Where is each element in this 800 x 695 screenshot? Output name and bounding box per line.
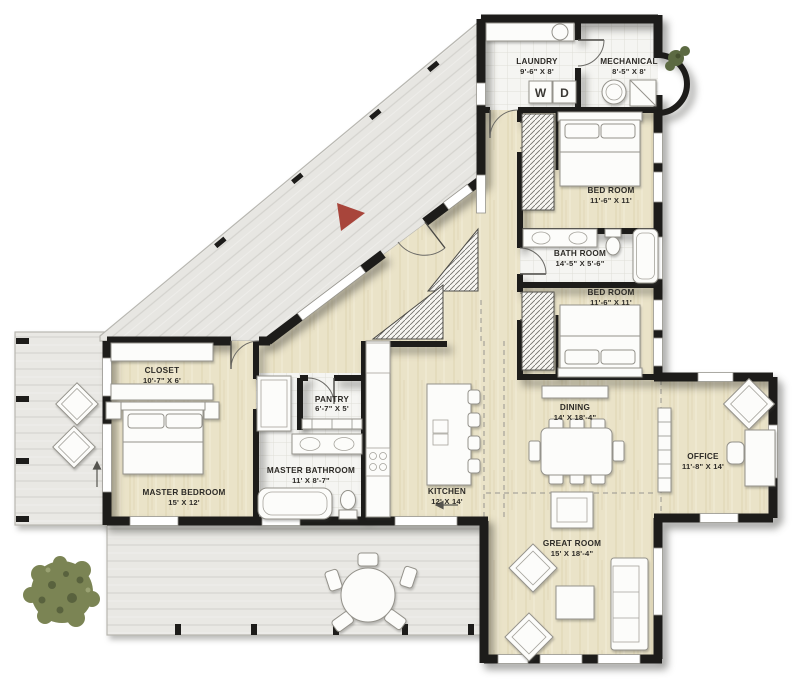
label-kitchen: KITCHEN	[428, 487, 466, 496]
label-master-bathroom: MASTER BATHROOM	[267, 466, 355, 475]
label-mechanical: MECHANICAL	[600, 57, 658, 66]
floor-plan: LAUNDRY 9'-6" X 8' MECHANICAL 8'-5" X 8'…	[0, 0, 800, 695]
master-bed	[106, 402, 219, 474]
bathroom-toilet	[605, 229, 621, 255]
kitchen-counter	[366, 341, 390, 517]
pantry-shelf	[302, 419, 362, 429]
label-office: OFFICE	[687, 452, 719, 461]
plant-top-right	[665, 46, 690, 71]
label-dryer: D	[560, 86, 569, 100]
bush-bottom-left	[23, 556, 100, 627]
master-toilet	[339, 491, 357, 520]
dims-bathroom: 14'-5" X 5'-6"	[555, 259, 604, 268]
laundry-counter	[486, 23, 574, 41]
dims-master-bathroom: 11' X 8'-7"	[292, 476, 330, 485]
left-deck	[15, 332, 107, 525]
label-closet: CLOSET	[145, 366, 180, 375]
office-chair	[727, 442, 744, 464]
label-pantry: PANTRY	[315, 395, 350, 404]
dims-dining: 14' X 18'-4"	[554, 413, 597, 422]
dims-closet: 10'-7" X 6'	[143, 376, 181, 385]
bedroom-bottom-bed	[558, 305, 642, 377]
greatroom-sofa	[611, 558, 648, 650]
master-shower	[257, 376, 291, 431]
label-bedroom-bottom: BED ROOM	[587, 288, 634, 297]
dims-master-bedroom: 15' X 12'	[168, 498, 200, 507]
bedroom-top-bed	[558, 112, 642, 186]
bedroom-bottom-closet	[522, 292, 554, 370]
dims-pantry: 6'-7" X 5'	[315, 404, 349, 413]
label-dining: DINING	[560, 403, 590, 412]
dining-table-set	[529, 419, 624, 484]
greatroom-console	[551, 492, 593, 528]
label-great-room: GREAT ROOM	[543, 539, 601, 548]
label-bedroom-top: BED ROOM	[587, 186, 634, 195]
bathroom-tub	[633, 229, 658, 283]
master-tub	[258, 488, 332, 519]
dims-kitchen: 12' X 14'	[431, 497, 463, 506]
dims-mechanical: 8'-5" X 8'	[612, 67, 646, 76]
dims-office: 11'-8" X 14'	[682, 462, 724, 471]
dims-laundry: 9'-6" X 8'	[520, 67, 554, 76]
dims-bedroom-bottom: 11'-6" X 11'	[590, 298, 632, 307]
dims-great-room: 15' X 18'-4"	[551, 549, 594, 558]
master-vanity	[292, 434, 362, 454]
label-master-bedroom: MASTER BEDROOM	[142, 488, 225, 497]
greatroom-coffee-table	[556, 586, 594, 619]
bedroom-top-closet	[522, 114, 554, 210]
label-laundry: LAUNDRY	[516, 57, 558, 66]
dims-bedroom-top: 11'-6" X 11'	[590, 196, 632, 205]
label-washer: W	[535, 86, 547, 100]
bottom-deck	[107, 519, 484, 635]
label-bathroom: BATH ROOM	[554, 249, 606, 258]
office-desk	[745, 430, 775, 486]
dining-sideboard	[542, 386, 608, 398]
floor-plan-drawing: LAUNDRY 9'-6" X 8' MECHANICAL 8'-5" X 8'…	[0, 0, 800, 695]
bathroom-vanity	[523, 229, 597, 247]
